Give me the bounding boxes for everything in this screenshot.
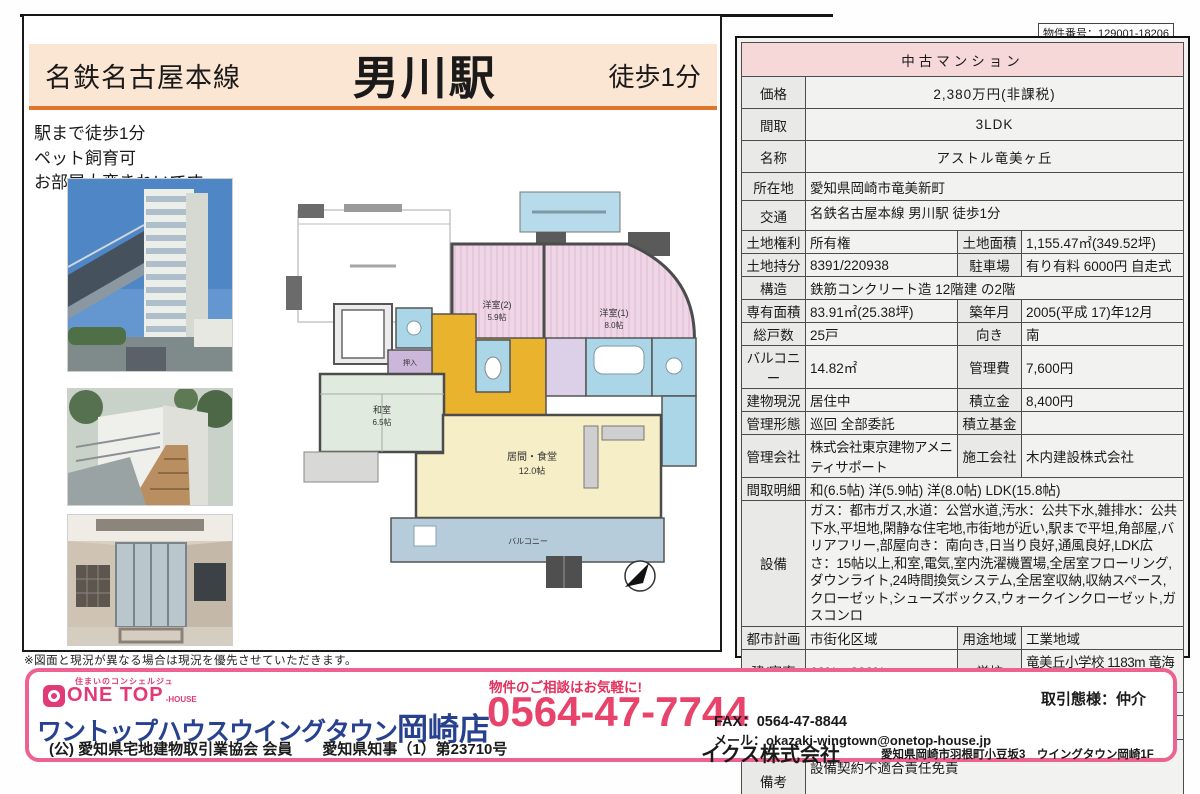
walk-time: 徒歩1分 (609, 57, 701, 94)
svg-text:6.5帖: 6.5帖 (372, 417, 391, 427)
spec-frame: 中古マンション 価格2,380万円(非課税) 間取3LDK 名称アストル竜美ヶ丘… (735, 36, 1190, 658)
equipment-value: ガス：都市ガス,水道：公営水道,汚水：公共下水,雑排水：公共下水,平坦地,閑静な… (806, 501, 1184, 627)
svg-text:和室: 和室 (373, 404, 391, 415)
svg-text:洋室(1): 洋室(1) (600, 307, 629, 318)
svg-text:押入: 押入 (403, 358, 417, 367)
row-land: 土地権利所有権土地面積1,155.47㎡(349.52坪) (742, 231, 1184, 254)
svg-text:5.9帖: 5.9帖 (487, 312, 506, 322)
compass-icon (625, 561, 655, 591)
agency-footer: 住まいのコンシェルジュ ONE TOP -HOUSE ワントップハウスウイングタ… (25, 668, 1177, 762)
row-equipment: 設備ガス：都市ガス,水道：公営水道,汚水：公共下水,雑排水：公共下水,平坦地,閑… (742, 501, 1184, 627)
transaction-type: 取引態様：仲介 (1041, 688, 1146, 709)
row-city-plan: 都市計画市街化区域用途地域工業地域 (742, 626, 1184, 649)
row-structure: 構造鉄筋コンクリート造 12階建 の2階 (742, 277, 1184, 300)
floor-plan: 洋室(2) 5.9帖 洋室(1) 8.0帖 押入 (284, 188, 726, 646)
svg-text:8.0帖: 8.0帖 (604, 320, 623, 330)
building-exterior-photo (67, 178, 233, 372)
row-room-detail: 間取明細和(6.5帖) 洋(5.9帖) 洋(8.0帖) LDK(15.8帖) (742, 478, 1184, 501)
row-category: 中古マンション (742, 43, 1184, 77)
fax-number: FAX：0564-47-8844 (714, 710, 847, 731)
lobby-photo (67, 514, 233, 646)
svg-text:洋室(2): 洋室(2) (483, 299, 512, 310)
approach-photo (67, 388, 233, 506)
company-name: イクス株式会社 (701, 738, 840, 767)
station-name: 男川駅 (241, 42, 609, 108)
rail-line-name: 名鉄名古屋本線 (45, 56, 241, 95)
price-value: 2,380万円(非課税) (806, 77, 1184, 109)
row-layout: 間取3LDK (742, 109, 1184, 141)
row-share: 土地持分8391/220938駐車場有り有料 6000円 自走式 (742, 254, 1184, 277)
row-status: 建物現況居住中積立金8,400円 (742, 389, 1184, 412)
svg-text:居間・食堂: 居間・食堂 (507, 450, 557, 463)
row-mgmt-type: 管理形態巡回 全部委託積立基金 (742, 412, 1184, 435)
address-value: 愛知県岡崎市竜美新町 (806, 173, 1184, 201)
row-mgmt-co: 管理会社株式会社東京建物アメニティサポート施工会社木内建設株式会社 (742, 435, 1184, 478)
svg-text:バルコニー: バルコニー (508, 537, 548, 546)
row-address: 所在地愛知県岡崎市竜美新町 (742, 173, 1184, 201)
row-units: 総戸数25戸向き南 (742, 323, 1184, 346)
left-panel: 名鉄名古屋本線 男川駅 徒歩1分 駅まで徒歩1分 ペット飼育可 お部屋大変きれい… (22, 16, 722, 652)
row-area: 専有面積83.91㎡(25.38坪)築年月2005(平成 17)年12月 (742, 300, 1184, 323)
row-access: 交通名鉄名古屋本線 男川駅 徒歩1分 (742, 201, 1184, 231)
access-value: 名鉄名古屋本線 男川駅 徒歩1分 (806, 201, 1184, 231)
flyer-page: 名鉄名古屋本線 男川駅 徒歩1分 駅まで徒歩1分 ペット飼育可 お部屋大変きれい… (0, 0, 1200, 794)
row-price: 価格2,380万円(非課税) (742, 77, 1184, 109)
layout-value: 3LDK (806, 109, 1184, 141)
row-name: 名称アストル竜美ヶ丘 (742, 141, 1184, 173)
name-value: アストル竜美ヶ丘 (806, 141, 1184, 173)
row-balcony: バルコニー14.82㎡管理費7,600円 (742, 346, 1184, 389)
phone-number: 0564-47-7744 (487, 688, 749, 736)
svg-text:12.0帖: 12.0帖 (519, 465, 546, 476)
sales-point-2: ペット飼育可 (34, 147, 204, 172)
station-header-band: 名鉄名古屋本線 男川駅 徒歩1分 (29, 44, 717, 110)
license-line: (公) 愛知県宅地建物取引業協会 会員 愛知県知事（1）第23710号 (49, 738, 507, 759)
category: 中古マンション (742, 43, 1184, 77)
plan-disclaimer: ※図面と現況が異なる場合は現況を優先させていただきます。 (24, 652, 357, 668)
company-address: 愛知県岡崎市羽根町小豆坂3 ウイングタウン岡崎1F (881, 746, 1154, 762)
sales-point-1: 駅まで徒歩1分 (34, 122, 204, 147)
